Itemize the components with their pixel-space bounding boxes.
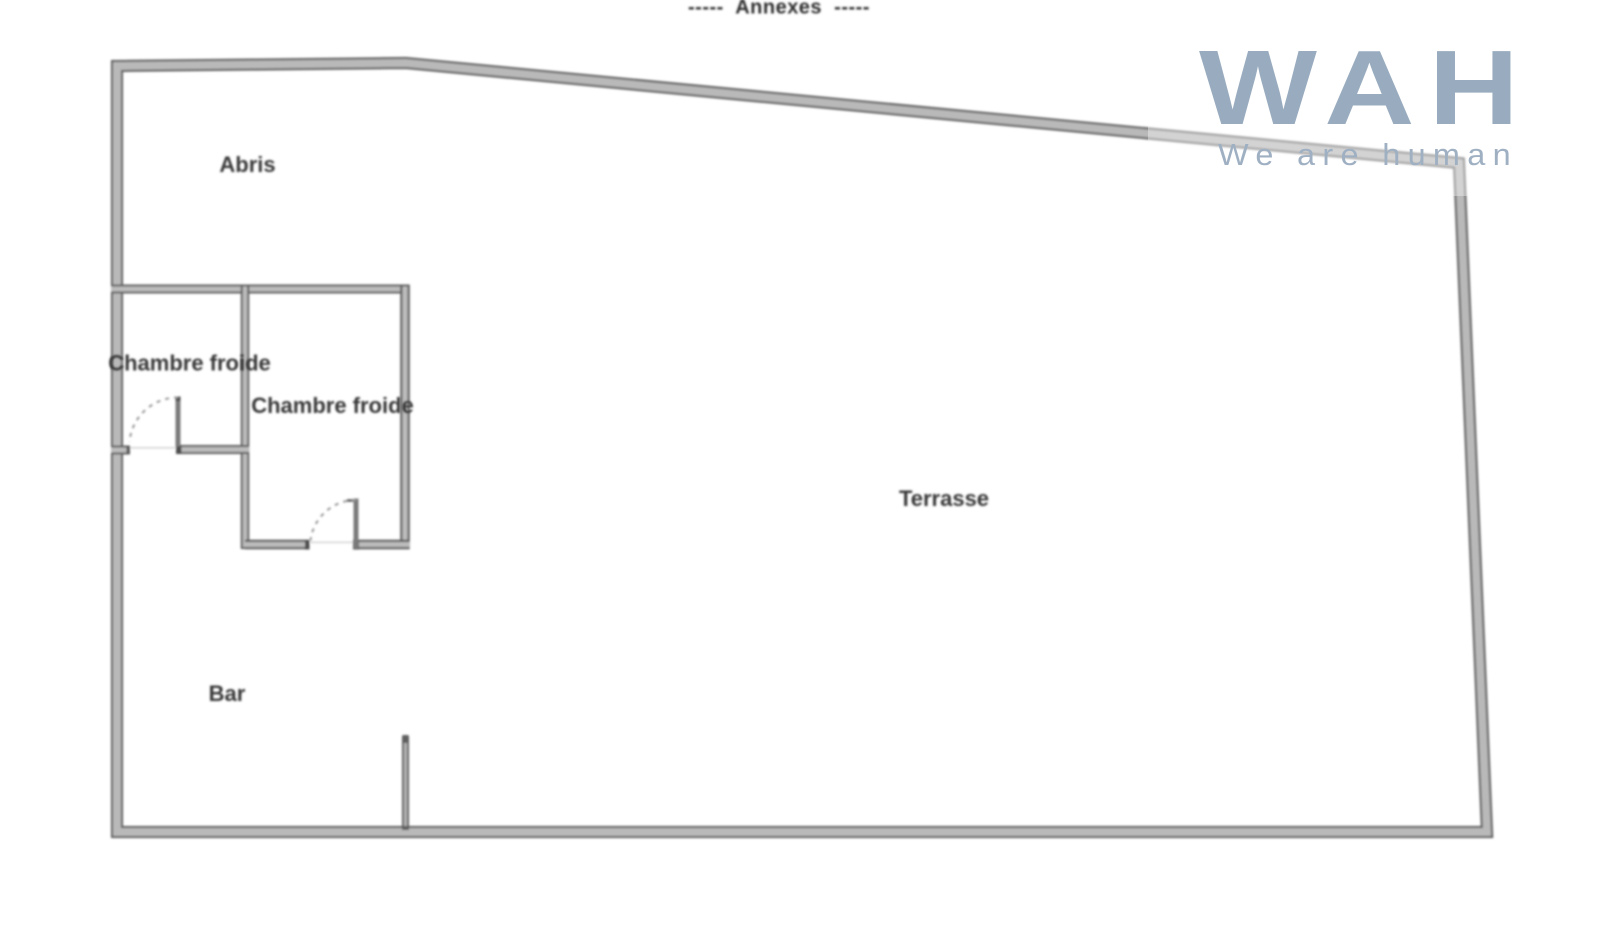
svg-text:Bar: Bar	[209, 681, 246, 706]
svg-text:----- Annexes -----: ----- Annexes -----	[688, 0, 870, 19]
svg-text:Terrasse: Terrasse	[899, 486, 989, 511]
svg-text:Chambre froide: Chambre froide	[251, 393, 414, 418]
svg-text:We are human: We are human	[1218, 137, 1518, 172]
svg-text:Abris: Abris	[219, 152, 275, 177]
svg-text:WAH: WAH	[1199, 29, 1533, 147]
svg-text:Chambre froide: Chambre froide	[108, 351, 271, 376]
